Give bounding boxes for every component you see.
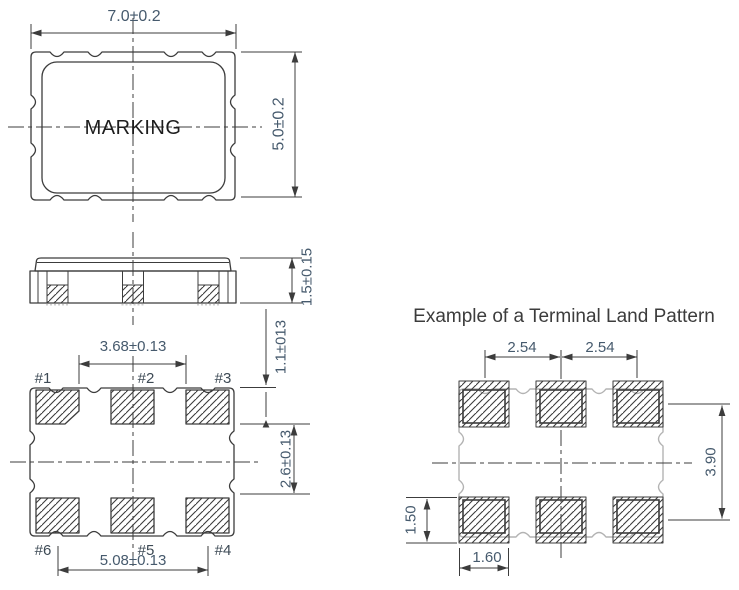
dim-pitch-left: 2.54 xyxy=(507,339,536,356)
dim-thickness: 1.5±0.15 xyxy=(299,248,316,306)
row-pitch-extension-lines xyxy=(668,404,730,520)
package-dimension-drawing: MARKING 7.0±0.2 5.0±0.2 1.5±0.15 1.1±013… xyxy=(0,0,739,590)
dim-pads-inner-span: 3.68±0.13 xyxy=(100,338,167,355)
land-pattern: Example of a Terminal Land Pattern 2.54 … xyxy=(403,306,731,576)
dim-pad-height: 1.50 xyxy=(403,505,420,534)
side-view-terminal-1 xyxy=(47,285,68,303)
pad-1-label: #1 xyxy=(35,370,52,387)
row-gap-extension-lines xyxy=(240,424,310,494)
side-view: 1.5±0.15 xyxy=(30,232,316,325)
top-view: MARKING 7.0±0.2 5.0±0.2 xyxy=(8,8,302,222)
dim-body-width: 7.0±0.2 xyxy=(107,8,160,25)
land-pad-2 xyxy=(536,381,586,427)
land-pad-1 xyxy=(459,381,509,427)
drawing-canvas: MARKING 7.0±0.2 5.0±0.2 1.5±0.15 1.1±013… xyxy=(0,0,739,590)
pad-2-label: #2 xyxy=(138,370,155,387)
land-pattern-title: Example of a Terminal Land Pattern xyxy=(413,306,715,327)
thickness-extension-lines xyxy=(240,258,302,303)
dim-edge-offset: 1.1±013 xyxy=(273,320,290,374)
pad-3 xyxy=(186,390,229,424)
dim-pads-outer-span: 5.08±0.13 xyxy=(100,552,167,569)
land-pad-6 xyxy=(459,497,509,543)
land-pad-3 xyxy=(613,381,663,427)
dim-body-height: 5.0±0.2 xyxy=(271,97,288,150)
side-view-terminal-3 xyxy=(198,285,219,303)
dim-row-pitch: 3.90 xyxy=(703,447,720,476)
pad-6-label: #6 xyxy=(35,542,52,559)
dim-pitch-right: 2.54 xyxy=(585,339,614,356)
bottom-view: #1 #2 #3 #6 #5 #4 3.68±0.13 5.08±0.13 xyxy=(10,338,262,576)
dim-pad-width: 1.60 xyxy=(472,549,501,566)
pad-3-label: #3 xyxy=(215,370,232,387)
pad-6 xyxy=(36,498,79,533)
land-pad-4 xyxy=(613,497,663,543)
pad-4-label: #4 xyxy=(215,542,232,559)
pad-1 xyxy=(36,390,79,424)
pad-2 xyxy=(111,390,154,424)
dim-row-gap: 2.6±0.13 xyxy=(278,430,295,488)
pad-5 xyxy=(111,498,154,533)
land-pad-5 xyxy=(536,497,586,543)
offset-dimensions: 1.1±013 2.6±0.13 xyxy=(240,309,310,494)
side-view-terminal-2 xyxy=(123,285,144,303)
pad-4 xyxy=(186,498,229,533)
marking-text: MARKING xyxy=(85,117,182,139)
